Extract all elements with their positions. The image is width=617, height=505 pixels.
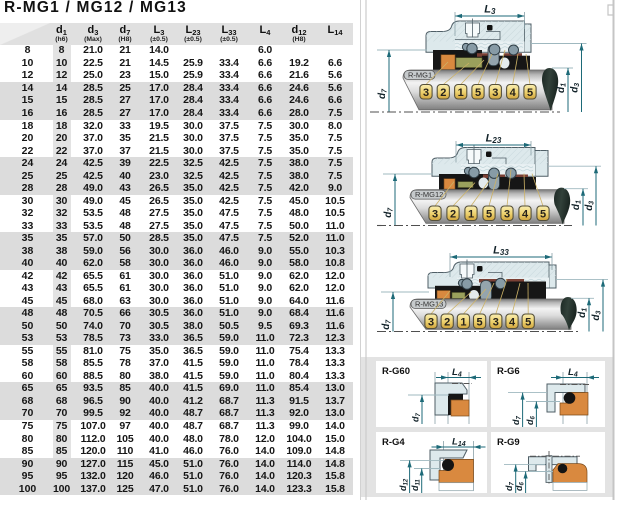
svg-text:d7: d7 <box>377 88 389 99</box>
svg-text:4: 4 <box>509 316 516 328</box>
svg-text:1: 1 <box>458 87 464 99</box>
svg-text:4: 4 <box>510 87 517 99</box>
svg-text:4: 4 <box>522 208 529 220</box>
svg-text:2: 2 <box>444 316 450 328</box>
svg-text:L33: L33 <box>493 245 509 258</box>
svg-text:1: 1 <box>468 208 474 220</box>
svg-text:R-G4: R-G4 <box>382 437 405 448</box>
svg-text:5: 5 <box>475 87 481 99</box>
svg-text:1: 1 <box>460 316 466 328</box>
svg-text:3: 3 <box>504 208 510 220</box>
svg-text:R-G9: R-G9 <box>497 437 520 448</box>
svg-text:R-G6: R-G6 <box>497 366 520 377</box>
svg-text:d3: d3 <box>591 310 603 320</box>
svg-text:R-G60: R-G60 <box>382 366 410 377</box>
svg-text:3: 3 <box>492 87 498 99</box>
svg-text:5: 5 <box>540 208 546 220</box>
svg-text:5: 5 <box>527 87 533 99</box>
svg-text:d1: d1 <box>571 200 583 210</box>
svg-text:2: 2 <box>440 87 446 99</box>
svg-text:L23: L23 <box>486 133 502 146</box>
svg-text:d1: d1 <box>577 308 589 318</box>
svg-text:2: 2 <box>450 208 456 220</box>
svg-text:d7: d7 <box>383 207 395 218</box>
svg-text:d7: d7 <box>381 319 393 330</box>
svg-text:R-MG12: R-MG12 <box>415 190 443 199</box>
svg-text:R-MG1: R-MG1 <box>408 71 432 80</box>
svg-text:5: 5 <box>486 208 492 220</box>
svg-text:3: 3 <box>432 208 438 220</box>
svg-text:L3: L3 <box>484 4 496 17</box>
svg-text:d3: d3 <box>570 83 582 93</box>
svg-text:5: 5 <box>525 316 531 328</box>
svg-text:3: 3 <box>493 316 499 328</box>
svg-text:3: 3 <box>423 87 429 99</box>
svg-text:d3: d3 <box>584 201 596 211</box>
svg-text:3: 3 <box>428 316 434 328</box>
svg-text:5: 5 <box>477 316 483 328</box>
